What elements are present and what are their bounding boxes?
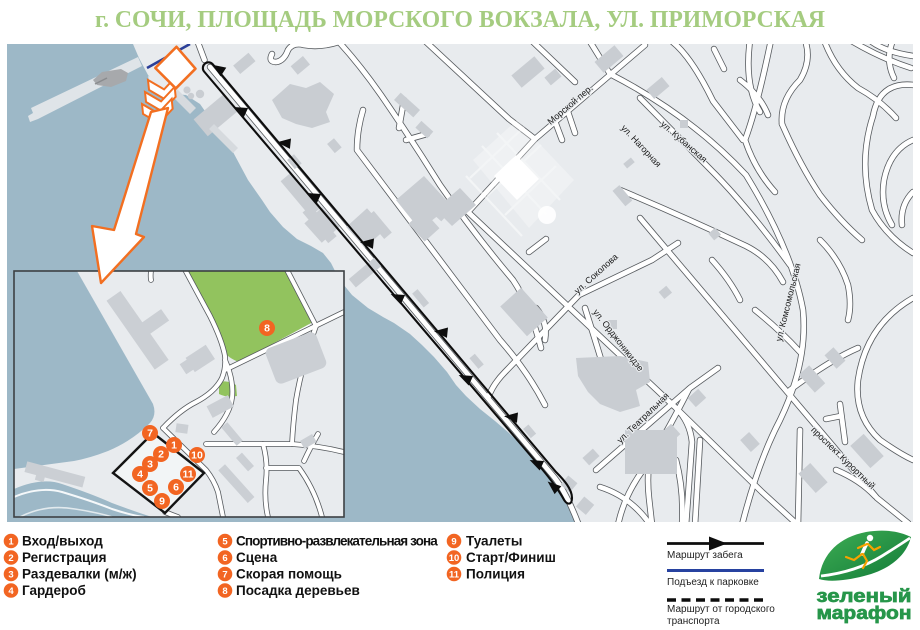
svg-text:6: 6 xyxy=(173,481,179,493)
svg-text:7: 7 xyxy=(147,427,153,439)
svg-text:1: 1 xyxy=(8,536,14,547)
svg-text:Скорая помощь: Скорая помощь xyxy=(236,567,342,582)
svg-text:г. СОЧИ, ПЛОЩАДЬ МОРСКОГО ВОКЗ: г. СОЧИ, ПЛОЩАДЬ МОРСКОГО ВОКЗАЛА, УЛ. П… xyxy=(95,6,825,33)
svg-text:2: 2 xyxy=(158,448,164,460)
svg-text:Маршрут от городского: Маршрут от городского xyxy=(667,604,775,615)
svg-text:2: 2 xyxy=(8,553,13,564)
svg-text:Маршрут забега: Маршрут забега xyxy=(667,549,743,561)
svg-text:Сцена: Сцена xyxy=(236,550,278,565)
svg-text:3: 3 xyxy=(147,458,153,470)
svg-text:4: 4 xyxy=(137,468,143,480)
svg-text:1: 1 xyxy=(171,439,177,451)
svg-text:5: 5 xyxy=(147,482,153,494)
svg-text:9: 9 xyxy=(159,495,165,507)
svg-text:4: 4 xyxy=(8,586,14,597)
svg-text:5: 5 xyxy=(222,536,228,547)
svg-text:8: 8 xyxy=(222,586,227,597)
svg-text:Вход/выход: Вход/выход xyxy=(22,534,103,549)
svg-text:11: 11 xyxy=(449,569,460,580)
svg-text:9: 9 xyxy=(451,536,456,547)
svg-text:Спортивно-развлекательная зона: Спортивно-развлекательная зона xyxy=(236,534,438,549)
svg-text:Гардероб: Гардероб xyxy=(22,583,86,598)
svg-text:6: 6 xyxy=(222,553,227,564)
svg-text:10: 10 xyxy=(191,449,203,461)
svg-text:марафон: марафон xyxy=(817,603,912,623)
svg-text:Раздевалки (м/ж): Раздевалки (м/ж) xyxy=(22,567,137,582)
svg-text:транспорта: транспорта xyxy=(667,616,720,627)
svg-text:Регистрация: Регистрация xyxy=(22,550,106,565)
svg-text:11: 11 xyxy=(182,468,193,480)
svg-text:Посадка деревьев: Посадка деревьев xyxy=(236,583,360,598)
svg-text:Подъезд к парковке: Подъезд к парковке xyxy=(667,577,759,588)
svg-text:Полиция: Полиция xyxy=(466,567,525,582)
svg-text:10: 10 xyxy=(449,553,460,564)
svg-text:3: 3 xyxy=(8,569,13,580)
svg-text:7: 7 xyxy=(222,569,227,580)
svg-text:Туалеты: Туалеты xyxy=(466,534,522,549)
svg-text:8: 8 xyxy=(264,322,270,334)
svg-text:Старт/Финиш: Старт/Финиш xyxy=(466,550,556,565)
